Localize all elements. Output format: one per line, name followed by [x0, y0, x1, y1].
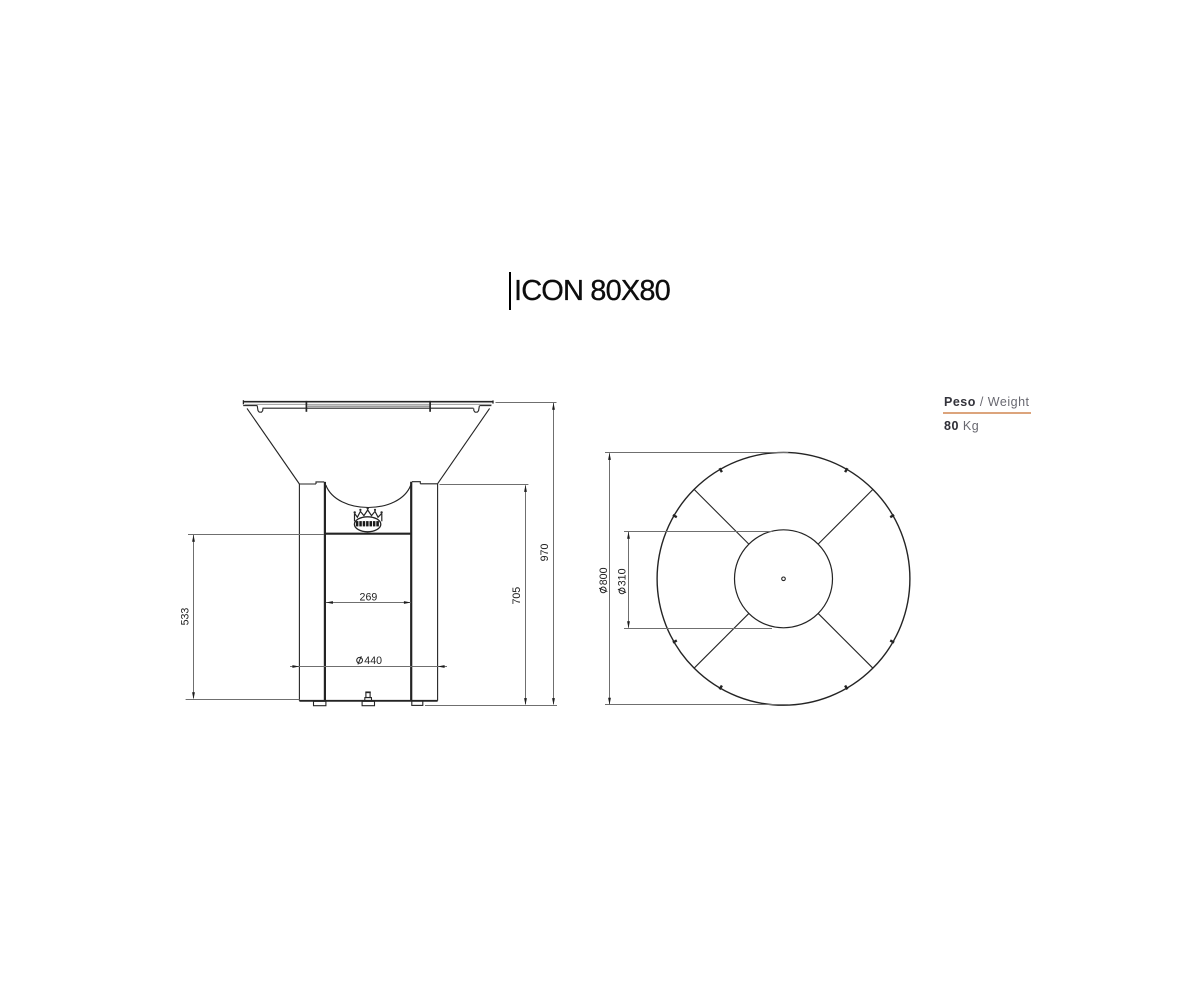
svg-text:800: 800: [598, 567, 610, 585]
svg-text:705: 705: [511, 587, 523, 605]
svg-text:310: 310: [617, 568, 629, 586]
svg-text:440: 440: [364, 655, 382, 667]
svg-text:970: 970: [539, 544, 551, 562]
svg-text:533: 533: [180, 608, 192, 626]
svg-text:269: 269: [360, 591, 378, 603]
